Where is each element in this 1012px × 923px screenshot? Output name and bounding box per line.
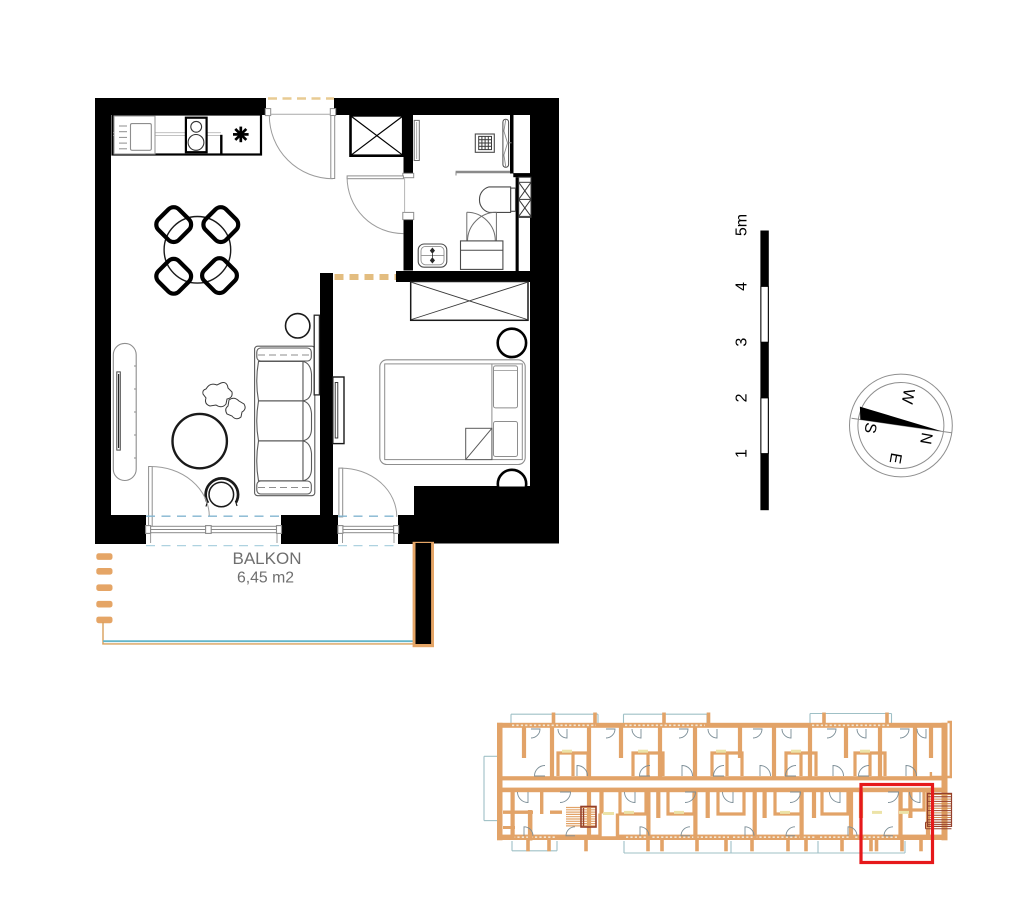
svg-text:BALKON: BALKON	[233, 549, 302, 568]
svg-text:2: 2	[734, 393, 751, 402]
svg-text:3: 3	[734, 338, 751, 347]
svg-text:5m: 5m	[734, 214, 751, 236]
svg-text:1: 1	[734, 449, 751, 458]
svg-text:4: 4	[734, 282, 751, 291]
svg-text:6,45 m2: 6,45 m2	[237, 570, 294, 587]
